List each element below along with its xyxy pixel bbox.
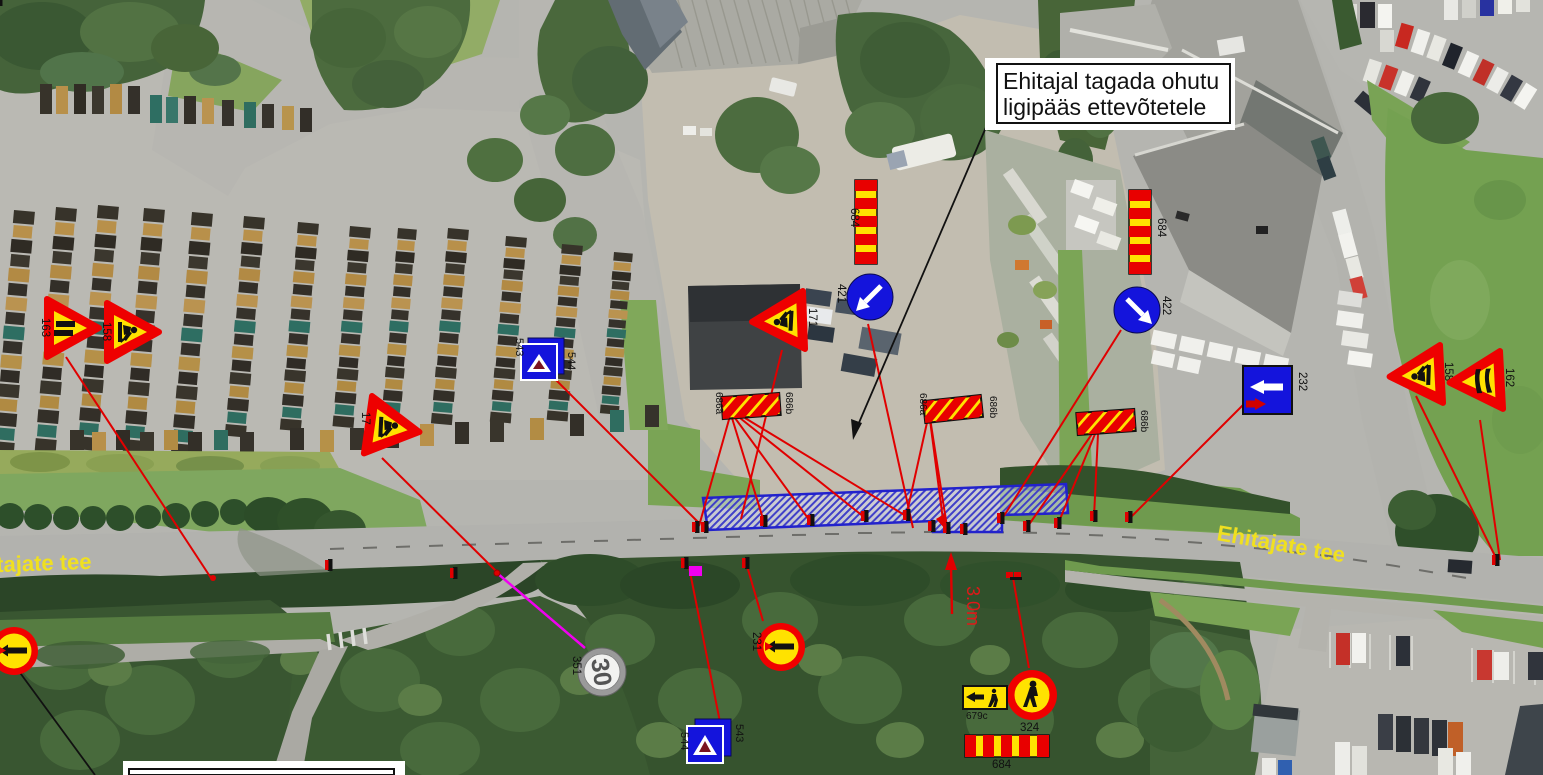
svg-text:421: 421	[835, 284, 847, 303]
svg-text:232: 232	[1296, 372, 1308, 391]
svg-text:543: 543	[513, 338, 525, 356]
svg-text:231: 231	[750, 632, 762, 651]
svg-text:544: 544	[678, 732, 690, 750]
svg-text:686b: 686b	[987, 396, 998, 419]
svg-text:158: 158	[100, 322, 112, 341]
svg-text:684: 684	[848, 208, 860, 228]
svg-text:679c: 679c	[966, 711, 988, 722]
svg-text:686a: 686a	[713, 392, 724, 415]
svg-text:544: 544	[565, 352, 577, 370]
svg-text:686a: 686a	[917, 393, 928, 416]
svg-text:17: 17	[359, 412, 371, 425]
svg-text:351: 351	[570, 656, 582, 675]
svg-text:162: 162	[1503, 368, 1515, 387]
svg-text:163: 163	[39, 318, 51, 337]
svg-text:Ehitajate tee: Ehitajate tee	[0, 549, 92, 579]
svg-text:686b: 686b	[1138, 410, 1149, 433]
svg-text:171: 171	[806, 308, 818, 327]
svg-text:422: 422	[1160, 296, 1172, 315]
svg-text:ligipääs ettevõtetele: ligipääs ettevõtetele	[1003, 94, 1206, 120]
svg-text:543: 543	[733, 724, 745, 742]
svg-text:686b: 686b	[783, 392, 794, 415]
svg-text:684: 684	[992, 759, 1012, 771]
svg-text:30: 30	[585, 656, 617, 687]
svg-text:Ehitajal tagada ohutu: Ehitajal tagada ohutu	[1003, 68, 1219, 94]
svg-text:3.0m: 3.0m	[963, 586, 983, 626]
svg-text:684: 684	[1155, 218, 1167, 238]
svg-text:324: 324	[1020, 722, 1040, 734]
